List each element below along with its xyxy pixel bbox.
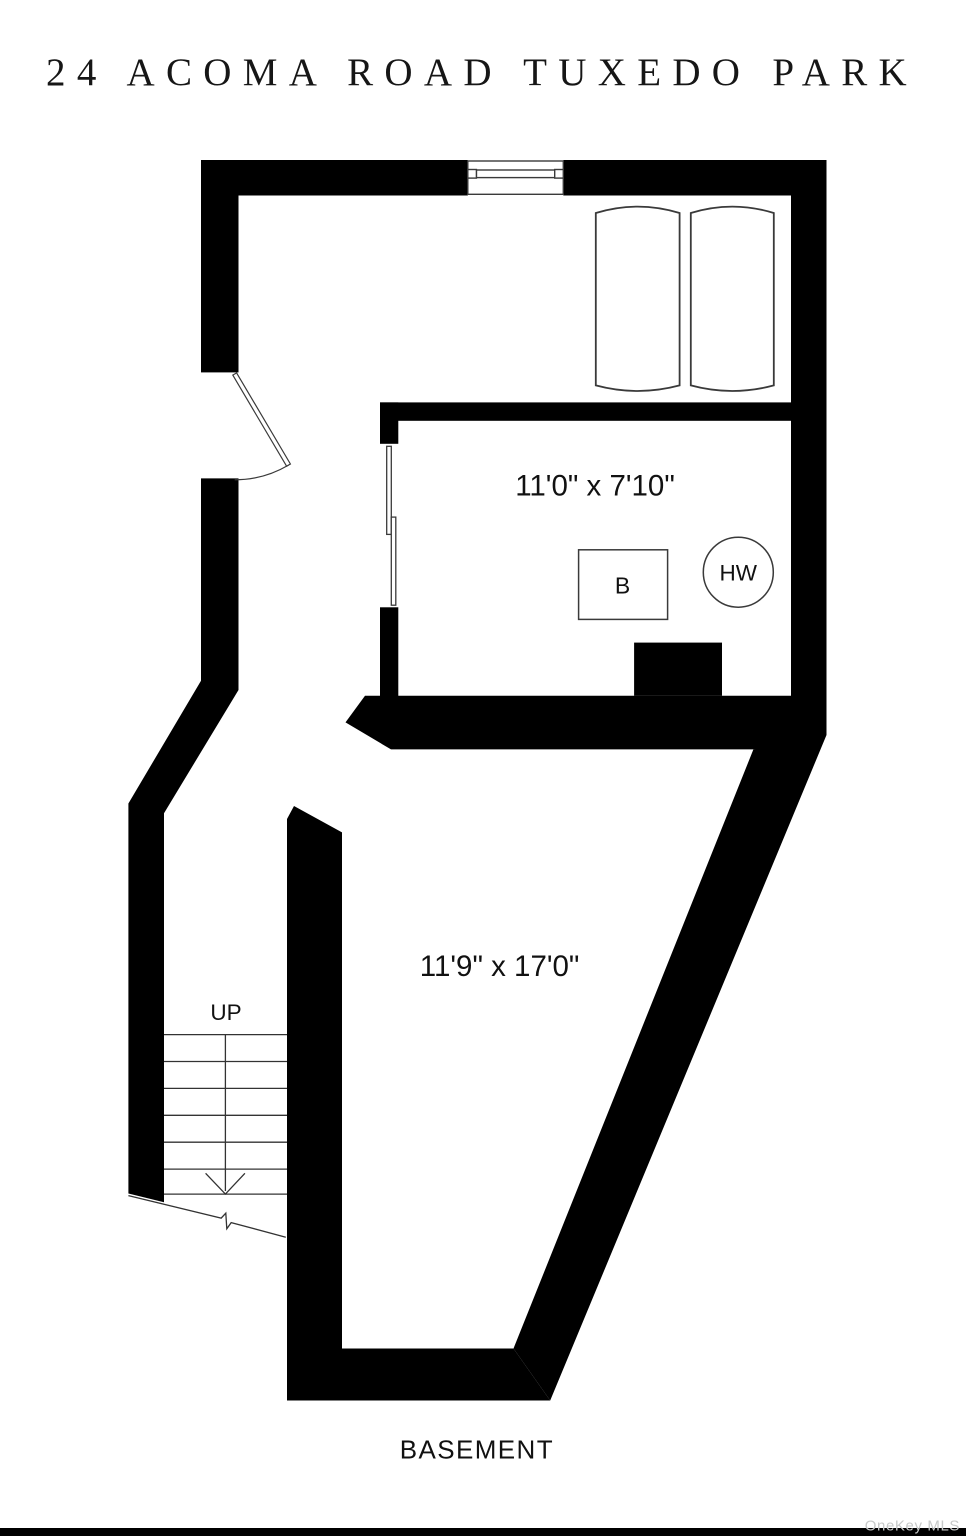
svg-text:24 ACOMA ROAD TUXEDO PARK: 24 ACOMA ROAD TUXEDO PARK — [46, 51, 918, 94]
svg-text:OneKey MLS: OneKey MLS — [865, 1518, 960, 1535]
svg-text:11'0" x 7'10": 11'0" x 7'10" — [515, 469, 675, 502]
svg-text:HW: HW — [720, 561, 758, 586]
svg-text:11'9" x 17'0": 11'9" x 17'0" — [420, 950, 580, 983]
svg-text:B: B — [615, 573, 630, 599]
svg-text:UP: UP — [210, 1000, 241, 1025]
svg-text:BASEMENT: BASEMENT — [400, 1435, 554, 1465]
